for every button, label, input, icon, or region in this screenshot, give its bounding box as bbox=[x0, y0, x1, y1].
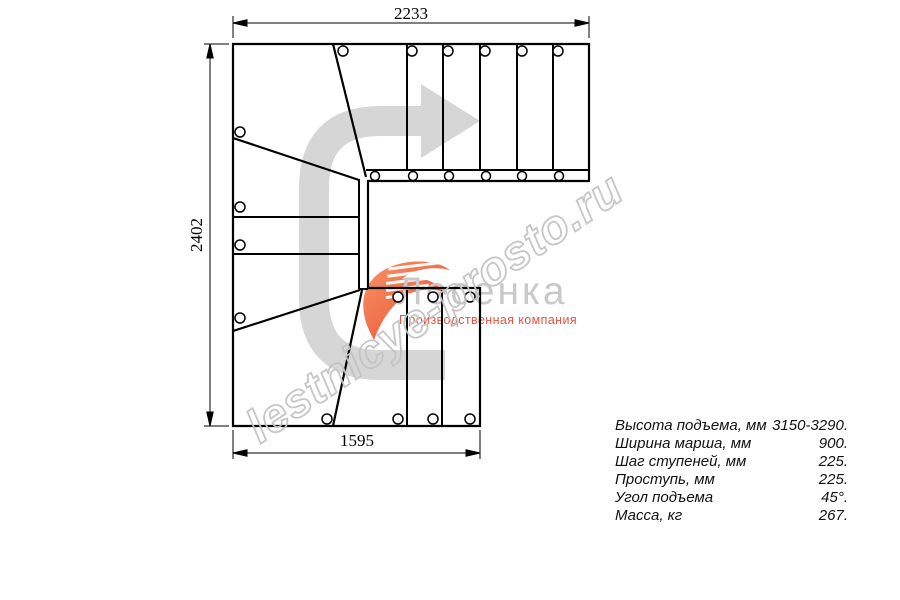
spec-row-rise-angle: Угол подъема 45°. bbox=[615, 489, 848, 507]
spec-label: Шаг ступеней, мм bbox=[615, 453, 746, 471]
dimension-top-width: 2233 bbox=[394, 4, 428, 24]
spec-label: Ширина марша, мм bbox=[615, 435, 751, 453]
spec-row-rise-height: Высота подъема, мм 3150-3290. bbox=[615, 417, 848, 435]
spec-label: Угол подъема bbox=[615, 489, 713, 507]
spec-value: 225. bbox=[819, 471, 848, 489]
stair-drawing-page: Лесенка Производственная компания bbox=[0, 0, 900, 600]
spec-row-tread-depth: Проступь, мм 225. bbox=[615, 471, 848, 489]
spec-value: 225. bbox=[819, 453, 848, 471]
spec-value: 45°. bbox=[821, 489, 848, 507]
spec-table: Высота подъема, мм 3150-3290. Ширина мар… bbox=[615, 417, 848, 524]
spec-label: Проступь, мм bbox=[615, 471, 715, 489]
spec-value: 267. bbox=[819, 507, 848, 525]
spec-row-mass: Масса, кг 267. bbox=[615, 507, 848, 525]
spec-value: 900. bbox=[819, 435, 848, 453]
spec-label: Высота подъема, мм bbox=[615, 417, 767, 435]
spec-value: 3150-3290. bbox=[772, 417, 848, 435]
spec-row-step-pitch: Шаг ступеней, мм 225. bbox=[615, 453, 848, 471]
spec-row-flight-width: Ширина марша, мм 900. bbox=[615, 435, 848, 453]
dimension-left-height: 2402 bbox=[187, 218, 207, 252]
spec-label: Масса, кг bbox=[615, 507, 682, 525]
dimension-bottom-width: 1595 bbox=[340, 431, 374, 451]
